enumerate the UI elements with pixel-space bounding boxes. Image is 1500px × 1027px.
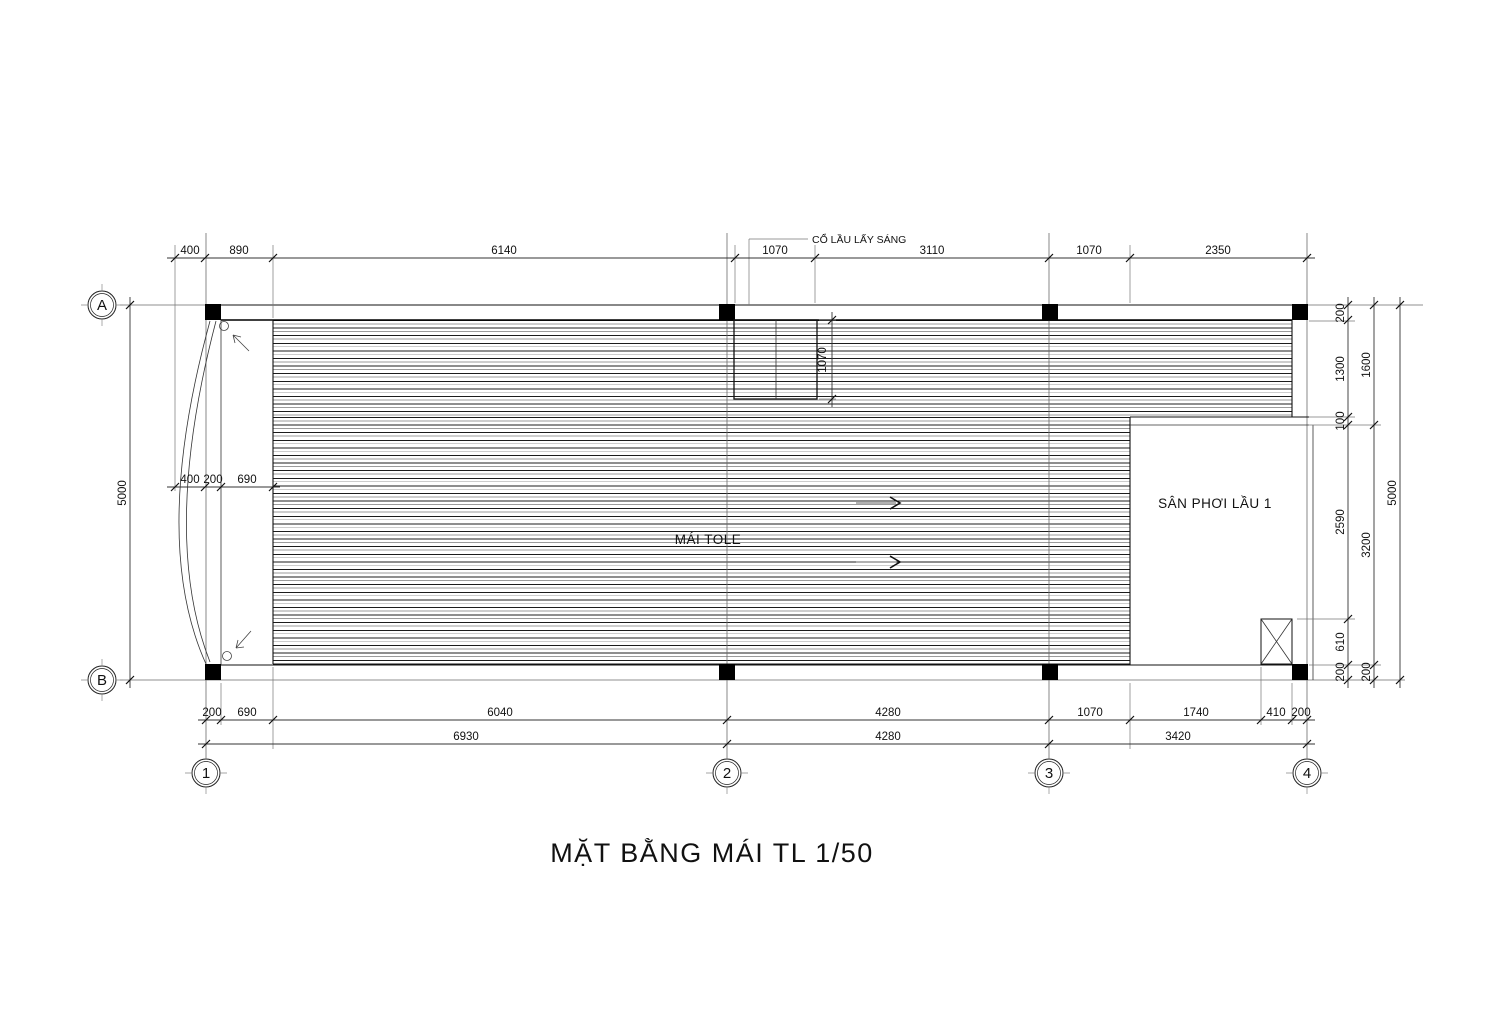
- dim-label: 1070: [1077, 707, 1103, 719]
- dim-label: 690: [237, 474, 256, 486]
- grid-col-label: 3: [1045, 765, 1053, 782]
- bottom-extension-lines: [221, 667, 1292, 749]
- slope-arrows: [856, 497, 900, 568]
- dim-label: 1600: [1361, 352, 1373, 378]
- column-A1: [205, 304, 221, 320]
- dim-label: 1070: [762, 245, 788, 257]
- dim-label: 200: [1361, 662, 1373, 681]
- grid-bubble-2: 2: [706, 752, 748, 794]
- column-B4: [1292, 664, 1308, 680]
- drain-symbols: [220, 322, 252, 661]
- drain-arrow-bottom: [236, 631, 251, 648]
- dim-label: 2350: [1205, 245, 1231, 257]
- dim-label: 890: [229, 245, 248, 257]
- canopy-curve-outer: [179, 321, 210, 664]
- terrace-label: SÂN PHƠI LẦU 1: [1158, 496, 1272, 511]
- skylight-box: [734, 320, 817, 399]
- dim-label: 4280: [875, 731, 901, 743]
- dim-label: 2590: [1335, 509, 1347, 535]
- dim-label: 200: [1335, 662, 1347, 681]
- dim-label: 690: [237, 707, 256, 719]
- dim-label: 3110: [920, 245, 945, 257]
- dim-label: 200: [202, 707, 221, 719]
- skylight-outline: [734, 320, 817, 399]
- roof-material-label: MÁI TOLE: [675, 532, 742, 547]
- drawing-sheet: 400 890 6140 1070 3110 1070 2350 200 690…: [0, 0, 1500, 1027]
- grid-bubble-1: 1: [185, 752, 227, 794]
- column-A4: [1292, 304, 1308, 320]
- grid-bubble-4: 4: [1286, 752, 1328, 794]
- canopy-curve-inner: [186, 321, 216, 662]
- dim-label: 410: [1266, 707, 1285, 719]
- dim-label: 610: [1335, 632, 1347, 651]
- shaft-box: [1261, 619, 1292, 664]
- dim-label: 400: [180, 245, 199, 257]
- grid-bubble-B: B: [81, 659, 123, 701]
- drain-circle-bottom: [223, 652, 232, 661]
- grid-bubble-A: A: [81, 284, 123, 326]
- dim-label: 200: [1335, 303, 1347, 322]
- column-B1: [205, 664, 221, 680]
- grid-col-label: 1: [202, 765, 210, 782]
- extension-lines: [175, 239, 1381, 749]
- top-extension-lines: [175, 245, 1130, 491]
- grid-col-label: 4: [1303, 765, 1311, 782]
- curved-canopy: [179, 321, 216, 664]
- grid-bubble-3: 3: [1028, 752, 1070, 794]
- column-B3: [1042, 664, 1058, 680]
- roof-plan-drawing: 400 890 6140 1070 3110 1070 2350 200 690…: [0, 0, 1500, 1027]
- dim-label: 4280: [875, 707, 901, 719]
- skylight-note-label: CỔ LẦU LẤY SÁNG: [812, 233, 906, 246]
- dim-label: 200: [203, 474, 222, 486]
- dim-label: 6040: [487, 707, 513, 719]
- columns: [205, 304, 1308, 680]
- dim-label: 200: [1291, 707, 1310, 719]
- drawing-title: MẶT BẰNG MÁI TL 1/50: [550, 837, 874, 868]
- dim-label: 6140: [491, 245, 517, 257]
- dim-label: 3200: [1361, 532, 1373, 558]
- column-A3: [1042, 304, 1058, 320]
- dim-label: 5000: [1387, 480, 1399, 506]
- annotation-labels: MÁI TOLE SÂN PHƠI LẦU 1 CỔ LẦU LẤY SÁNG: [675, 233, 1272, 547]
- grid-row-label: B: [97, 672, 107, 689]
- dim-label: 1740: [1183, 707, 1209, 719]
- column-B2: [719, 664, 735, 680]
- dim-label: 100: [1335, 411, 1347, 430]
- dim-label: 1300: [1335, 356, 1347, 382]
- dim-label: 5000: [117, 480, 129, 506]
- grid-row-label: A: [97, 297, 107, 314]
- dim-label: 3420: [1165, 731, 1191, 743]
- building-outline: [206, 305, 1313, 680]
- drain-arrow-top: [233, 335, 249, 351]
- dim-label: 1070: [817, 347, 829, 373]
- dim-label: 6930: [453, 731, 479, 743]
- dim-label: 1070: [1076, 245, 1102, 257]
- column-A2: [719, 304, 735, 320]
- grid-col-label: 2: [723, 765, 731, 782]
- dim-label: 400: [180, 474, 199, 486]
